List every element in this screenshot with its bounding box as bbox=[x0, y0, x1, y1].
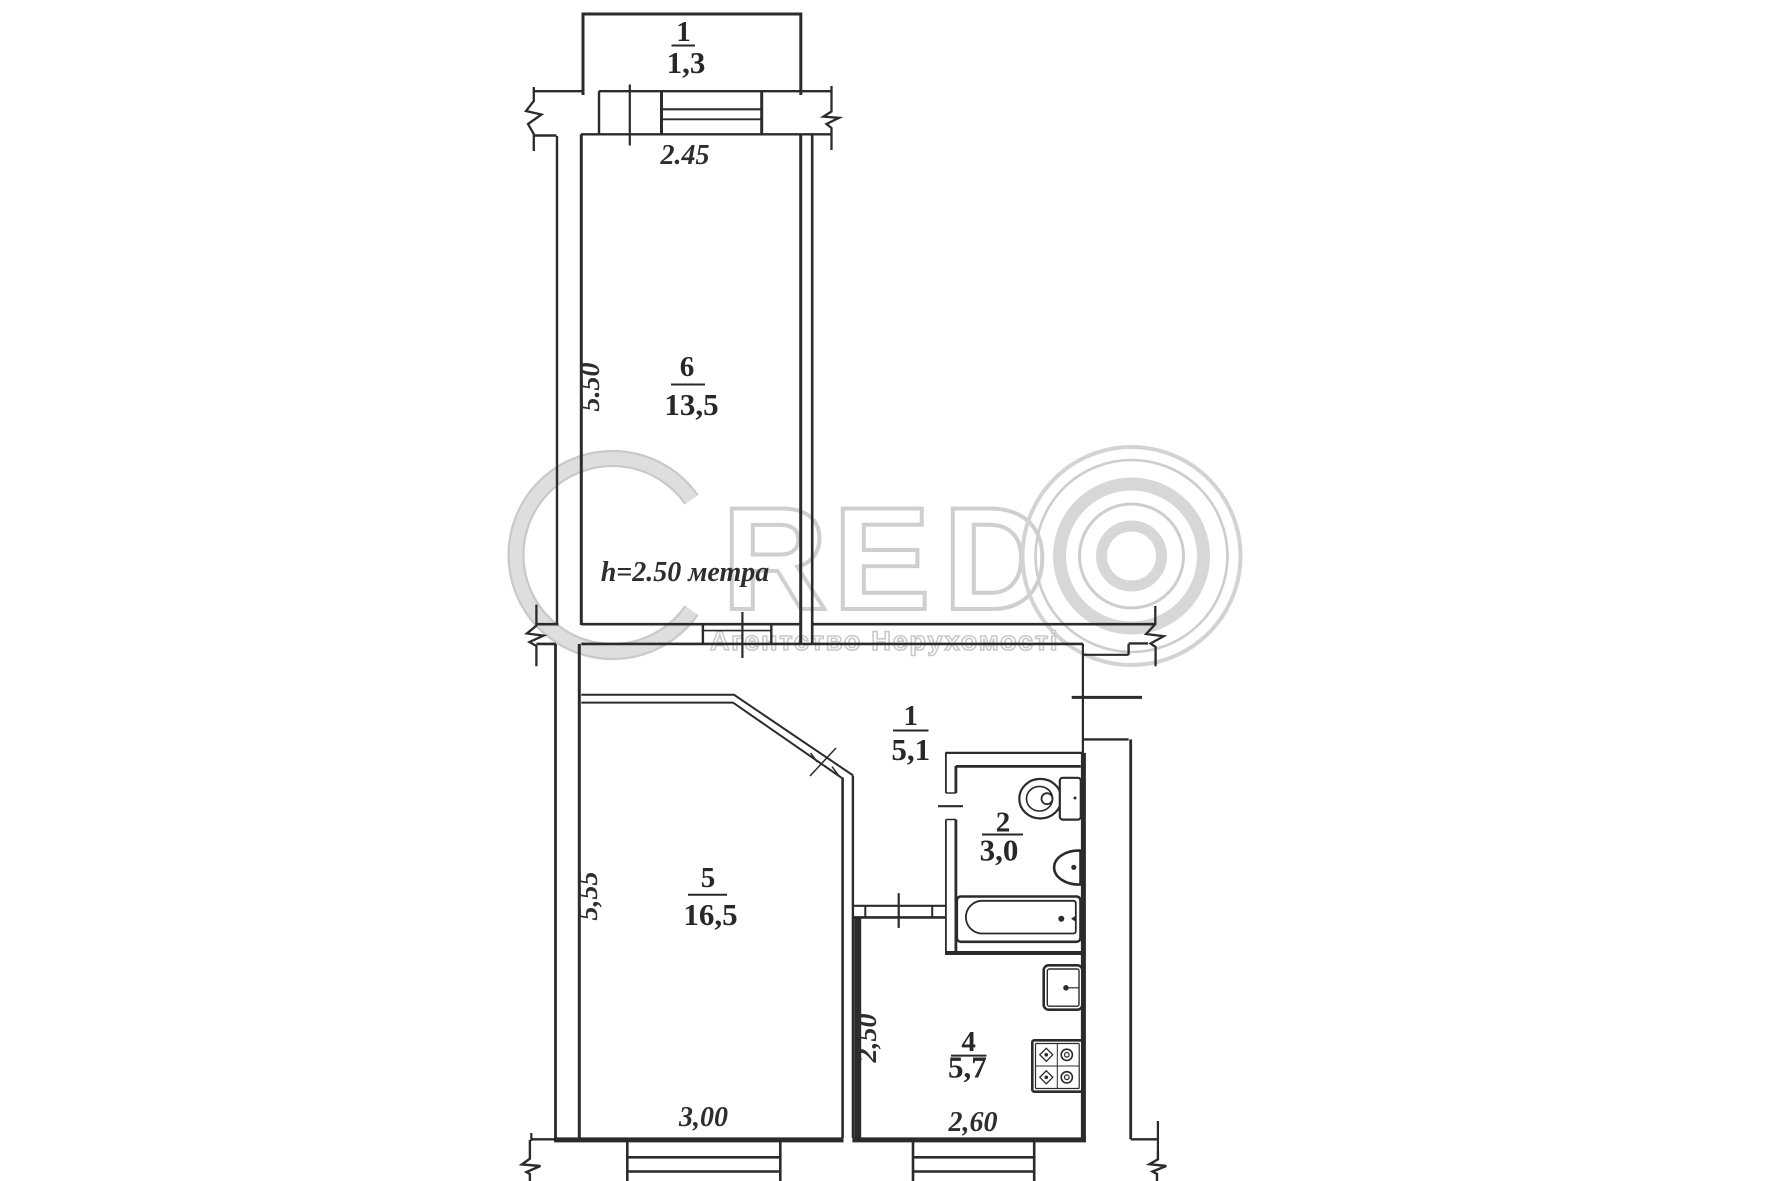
svg-text:16,5: 16,5 bbox=[683, 897, 737, 932]
svg-text:D: D bbox=[943, 477, 1048, 640]
svg-text:5.50: 5.50 bbox=[575, 363, 606, 412]
svg-text:h=2.50 метра: h=2.50 метра bbox=[601, 557, 770, 588]
svg-text:5,55: 5,55 bbox=[573, 872, 604, 921]
svg-text:1,3: 1,3 bbox=[667, 45, 706, 80]
svg-text:5,1: 5,1 bbox=[891, 732, 930, 767]
svg-text:2.45: 2.45 bbox=[660, 140, 710, 171]
svg-text:E: E bbox=[833, 477, 930, 640]
svg-text:5,7: 5,7 bbox=[948, 1050, 987, 1085]
svg-text:5: 5 bbox=[701, 862, 716, 894]
svg-text:1: 1 bbox=[904, 700, 919, 732]
svg-text:6: 6 bbox=[680, 351, 695, 383]
svg-text:3,0: 3,0 bbox=[980, 833, 1019, 868]
svg-text:2,60: 2,60 bbox=[948, 1107, 998, 1138]
svg-text:1: 1 bbox=[676, 16, 691, 48]
svg-text:3,00: 3,00 bbox=[678, 1102, 728, 1133]
svg-text:2,50: 2,50 bbox=[852, 1014, 883, 1064]
svg-text:13,5: 13,5 bbox=[664, 387, 718, 422]
